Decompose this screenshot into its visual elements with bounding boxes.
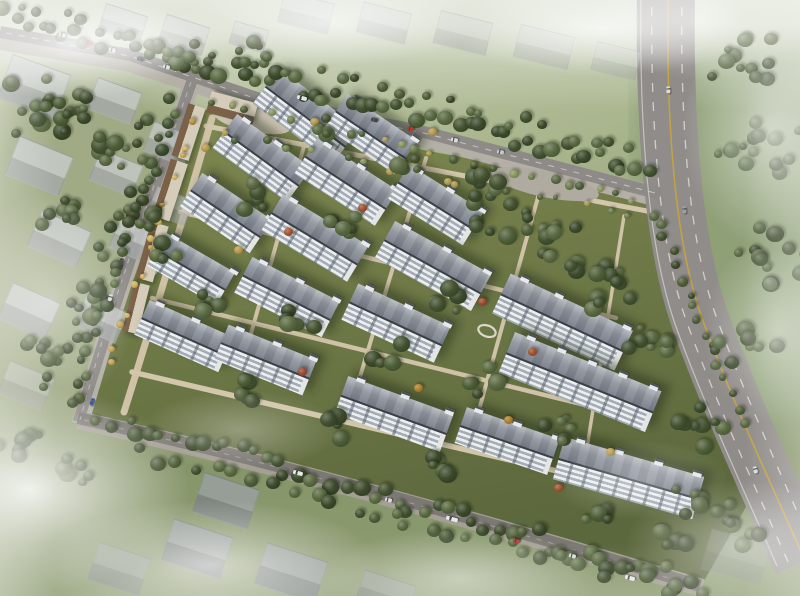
white-vignette-overlay: [0, 0, 800, 596]
aerial-render-canvas: [0, 0, 800, 596]
